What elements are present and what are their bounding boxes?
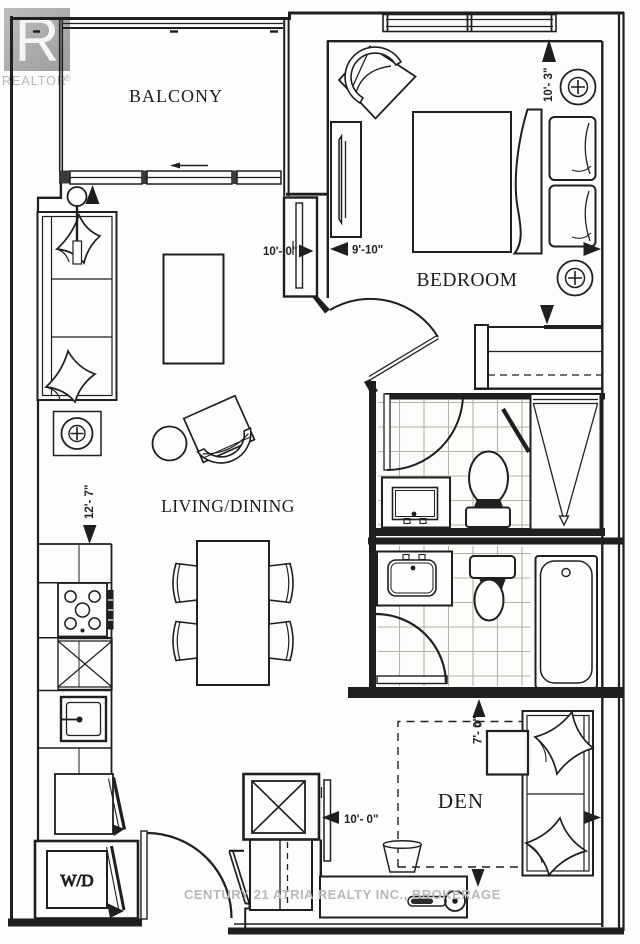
- svg-text:CENTURY 21 ATRIA REALTY INC.,: CENTURY 21 ATRIA REALTY INC., BROKERAGE: [184, 887, 501, 902]
- svg-text:DEN: DEN: [438, 789, 484, 813]
- svg-text:LIVING/DINING: LIVING/DINING: [161, 496, 295, 516]
- svg-text:7'- 0": 7'- 0": [473, 716, 485, 744]
- svg-text:W/D: W/D: [60, 871, 93, 890]
- svg-text:BEDROOM: BEDROOM: [416, 270, 517, 291]
- svg-text:10'- 0": 10'- 0": [263, 246, 297, 258]
- svg-text:R: R: [15, 6, 60, 75]
- svg-text:9'-10": 9'-10": [352, 245, 383, 257]
- svg-text:10'- 3": 10'- 3": [543, 68, 555, 102]
- svg-text:10'- 0": 10'- 0": [344, 814, 378, 826]
- svg-text:12'- 7": 12'- 7": [84, 485, 96, 519]
- svg-text:®: ®: [64, 73, 71, 83]
- svg-text:BALCONY: BALCONY: [129, 86, 223, 106]
